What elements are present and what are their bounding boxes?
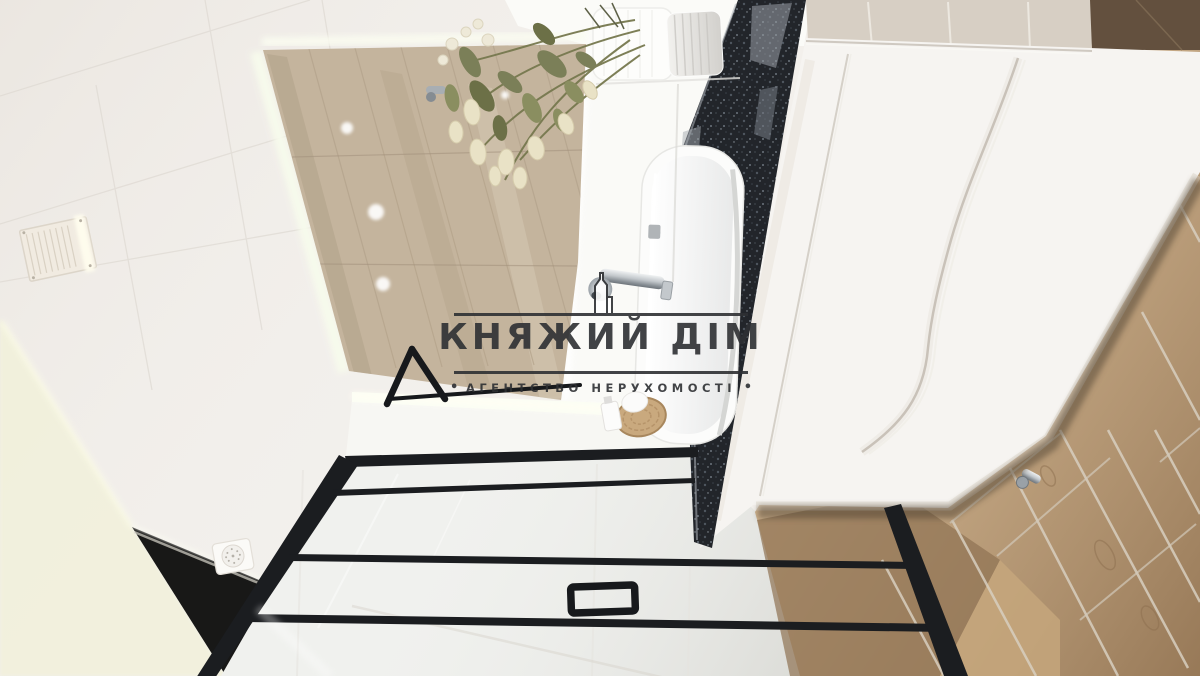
ceiling-speaker — [212, 538, 255, 575]
watermark: КНЯЖИЙ ДІМ • АГЕНТСТВО НЕРУХОМОСТІ • — [430, 271, 772, 403]
watermark-subtitle-text: АГЕНТСТВО НЕРУХОМОСТІ — [466, 381, 736, 395]
building-icon — [586, 271, 616, 315]
dark-floor-corner — [1088, 0, 1200, 50]
bathroom-photo: КНЯЖИЙ ДІМ • АГЕНТСТВО НЕРУХОМОСТІ • — [0, 0, 1200, 676]
flower-vase — [593, 8, 673, 80]
watermark-subtitle: • АГЕНТСТВО НЕРУХОМОСТІ • — [430, 380, 772, 395]
sink-tap-hole — [648, 225, 660, 239]
watermark-title: КНЯЖИЙ ДІМ — [410, 320, 792, 356]
watermark-bullet-right: • — [744, 380, 752, 395]
watermark-bullet-left: • — [450, 380, 458, 395]
rolled-towel — [666, 11, 723, 78]
watermark-rule-top — [454, 313, 748, 316]
watermark-rule-bottom — [454, 371, 748, 374]
